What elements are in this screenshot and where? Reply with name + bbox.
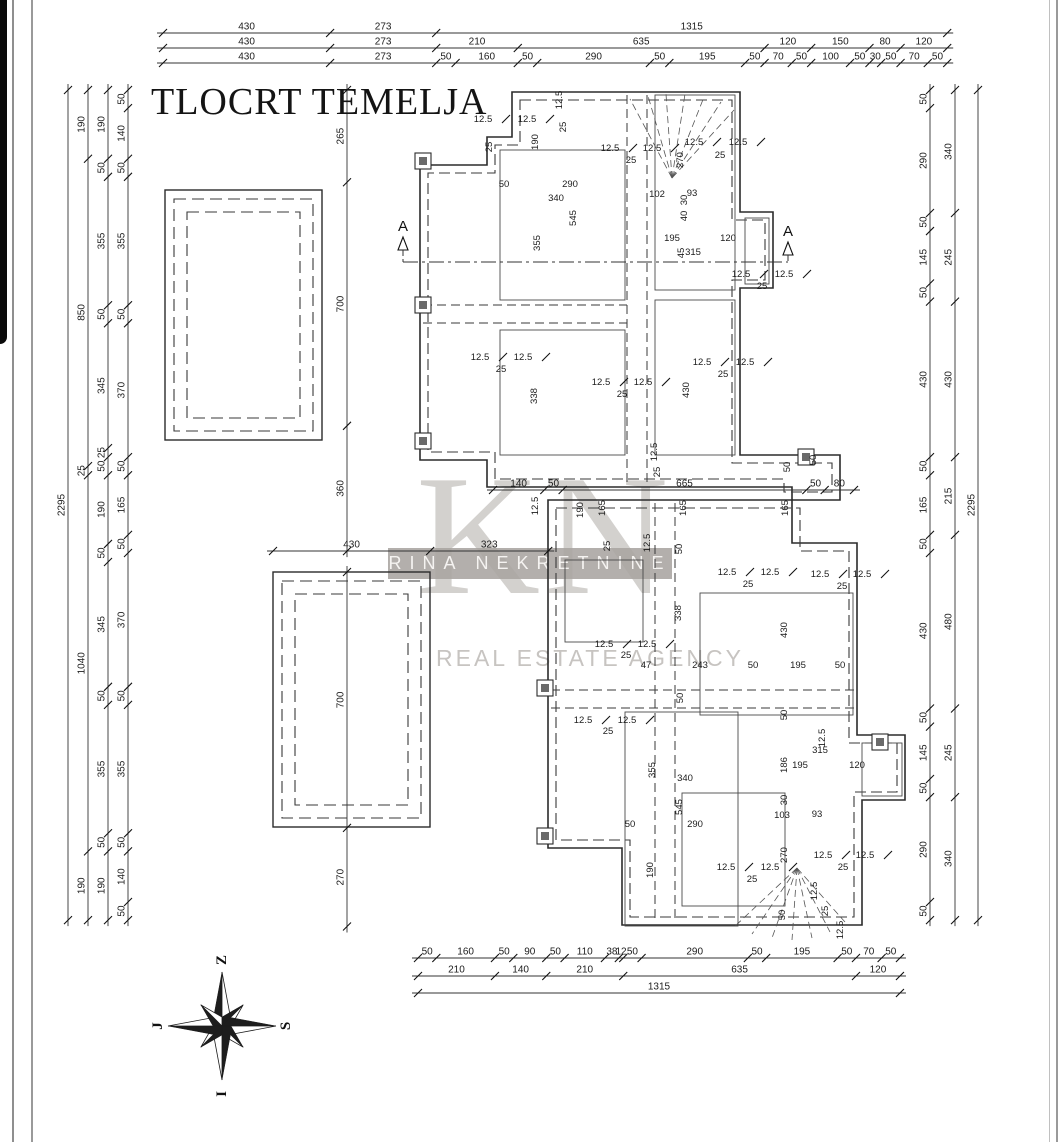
dim-label: 290	[687, 819, 703, 830]
drawing-title: TLOCRT TEMELJA	[151, 80, 487, 124]
dim-label: 50	[627, 947, 639, 958]
dim-label: 50	[625, 819, 636, 830]
dim-label: 50	[440, 52, 452, 63]
dim-label: 360	[336, 480, 347, 497]
scan-edge-bar	[0, 0, 7, 344]
room-outline	[500, 150, 625, 300]
dim-label: 30	[779, 795, 790, 806]
dim-label: 145	[919, 249, 930, 266]
dim-label: 290	[686, 947, 703, 958]
dimension-chain: 210140210635120	[412, 965, 906, 981]
dim-label: 50	[748, 660, 759, 671]
dimension-chain: 2295	[967, 84, 983, 926]
dim-label: 120	[849, 760, 865, 771]
dim-label: 25	[603, 726, 614, 737]
dim-label: 245	[944, 744, 955, 761]
dim-label: 480	[944, 613, 955, 630]
dimension-chain: 190850251040190	[77, 84, 93, 926]
dim-label: 25	[757, 281, 768, 292]
dim-label: 50	[522, 52, 534, 63]
compass-rose: ZSJI	[150, 955, 294, 1097]
dim-label: 190	[575, 502, 586, 518]
dimension-chain: 5029050145504305016550430501455029050	[919, 84, 935, 926]
dim-label: 12.5	[814, 850, 833, 861]
dim-label: 50	[919, 93, 930, 105]
detached-foundation-pad	[165, 190, 322, 440]
dim-label: 345	[97, 616, 108, 633]
dim-label: 50	[808, 455, 819, 466]
dim-label: 103	[774, 810, 790, 821]
dim-label: 338	[673, 605, 684, 621]
dim-label: 50	[117, 93, 128, 105]
dim-label: 290	[562, 179, 578, 190]
dim-label: 430	[238, 22, 255, 33]
dim-label: 102	[649, 189, 665, 200]
dim-label: 290	[585, 52, 602, 63]
dim-label: 50	[97, 460, 108, 472]
dim-label: 160	[478, 52, 495, 63]
dim-label: 80	[879, 37, 891, 48]
compass-direction-letter: J	[150, 1022, 166, 1030]
room-outline	[862, 743, 902, 796]
dimension-chain: 5016050905011038125029050195507050	[412, 947, 906, 963]
dim-label: 50	[674, 544, 685, 555]
dim-label: 545	[568, 210, 579, 226]
dim-label: 265	[336, 127, 347, 144]
dim-label: 430	[779, 622, 790, 638]
dim-label: 25	[484, 142, 495, 153]
dim-label: 50	[779, 710, 790, 721]
dim-label: 50	[97, 836, 108, 848]
dimension-chain: 4302731315	[157, 22, 953, 38]
dim-label: 50	[885, 947, 897, 958]
dim-label: 270	[675, 152, 686, 168]
dim-label: 273	[375, 52, 392, 63]
dim-label: 25	[617, 389, 628, 400]
dim-label: 12.5	[649, 443, 660, 462]
dim-label: 100	[822, 52, 839, 63]
dim-label: 30	[870, 52, 882, 63]
dim-label: 50	[919, 287, 930, 299]
dim-label: 50	[117, 538, 128, 550]
dim-label: 50	[919, 905, 930, 917]
dim-label: 290	[919, 152, 930, 169]
dim-label: 315	[812, 745, 828, 756]
dim-label: 12.5	[729, 137, 748, 148]
dim-label: 195	[664, 233, 680, 244]
section-mark-letter: A	[783, 223, 793, 240]
dim-label: 12.5	[717, 862, 736, 873]
dim-label: 140	[117, 125, 128, 142]
dim-label: 25	[77, 465, 88, 477]
dim-label: 700	[336, 295, 347, 312]
dim-label: 50	[841, 947, 853, 958]
dimension-chain: 2295	[57, 84, 73, 926]
dim-label: 25	[652, 467, 663, 478]
dim-label: 120	[720, 233, 736, 244]
dim-label: 70	[909, 52, 921, 63]
compass-point-dark	[222, 1026, 230, 1080]
dim-label: 195	[794, 947, 811, 958]
section-arrow	[398, 237, 408, 250]
dim-label: 165	[919, 496, 930, 513]
dim-label: 430	[343, 540, 360, 551]
dim-label: 25	[558, 122, 569, 133]
dim-label: 25	[838, 862, 849, 873]
section-mark-letter: A	[398, 218, 408, 235]
dim-label: 665	[676, 479, 693, 490]
dim-label: 140	[117, 868, 128, 885]
dim-label: 12.5	[471, 352, 490, 363]
dim-label: 50	[117, 460, 128, 472]
dim-label: 50	[548, 479, 560, 490]
dim-label: 25	[715, 150, 726, 161]
dim-label: 186	[779, 757, 790, 773]
dim-label: 150	[832, 37, 849, 48]
dim-label: 355	[647, 762, 658, 778]
dim-label: 120	[870, 965, 887, 976]
room-outline	[500, 330, 625, 455]
dim-label: 190	[97, 877, 108, 894]
dim-label: 50	[749, 52, 761, 63]
dim-label: 340	[944, 143, 955, 160]
dim-label: 50	[932, 52, 944, 63]
dim-label: 355	[97, 232, 108, 249]
compass-point-dark	[222, 1018, 276, 1026]
dim-label: 50	[777, 910, 788, 921]
dim-label: 355	[117, 232, 128, 249]
dim-label: 12.5	[618, 715, 637, 726]
dim-label: 30	[679, 195, 690, 206]
dim-label: 12.5	[601, 143, 620, 154]
dim-label: 635	[633, 37, 650, 48]
dim-label: 165	[117, 496, 128, 513]
dim-label: 195	[792, 760, 808, 771]
dim-label: 50	[97, 162, 108, 174]
room-outline	[700, 593, 853, 715]
dim-label: 25	[743, 579, 754, 590]
dim-label: 50	[499, 179, 510, 190]
dim-label: 273	[375, 22, 392, 33]
dim-label: 430	[681, 382, 692, 398]
blueprint-page: KN RINA NEKRETNINE REAL ESTATE AGENCY AA…	[0, 0, 1060, 1142]
dim-label: 190	[645, 862, 656, 878]
dim-label: 12.5	[809, 882, 820, 901]
detached-foundation-pad	[273, 572, 430, 827]
stair-fan-line	[666, 94, 672, 178]
dim-label: 12.5	[634, 377, 653, 388]
dim-label: 290	[919, 841, 930, 858]
dim-label: 50	[751, 947, 763, 958]
room-outline	[565, 560, 643, 642]
dim-label: 50	[422, 947, 434, 958]
stair-fan-line	[630, 99, 672, 178]
dim-label: 355	[97, 760, 108, 777]
dim-label: 50	[117, 836, 128, 848]
room-outline	[682, 793, 785, 906]
dim-label: 50	[919, 782, 930, 794]
dim-label: 50	[782, 462, 793, 473]
dim-label: 50	[835, 660, 846, 671]
section-arrow	[783, 242, 793, 255]
dim-label: 12.5	[530, 497, 541, 516]
dim-label: 90	[524, 947, 536, 958]
dim-label: 355	[532, 235, 543, 251]
dim-label: 210	[469, 37, 486, 48]
dim-label: 430	[919, 371, 930, 388]
dimension-chain: 4302735016050290501955070501005030507050	[157, 52, 953, 68]
dim-label: 12.5	[518, 114, 537, 125]
dim-label: 195	[699, 52, 716, 63]
dim-label: 340	[548, 193, 564, 204]
dim-label: 215	[944, 487, 955, 504]
dim-label: 50	[810, 479, 822, 490]
dim-label: 40	[679, 211, 690, 222]
dim-label: 50	[919, 538, 930, 550]
dim-label: 12.5	[643, 143, 662, 154]
dim-label: 270	[779, 847, 790, 863]
stair-fan-line	[797, 868, 812, 938]
dim-label: 25	[602, 541, 613, 552]
dim-label: 430	[919, 622, 930, 639]
compass-direction-letter: Z	[214, 955, 230, 965]
dim-label: 47	[641, 660, 652, 671]
dimension-chain: 1315	[412, 982, 906, 998]
dim-label: 50	[97, 308, 108, 320]
dim-label: 12.5	[514, 352, 533, 363]
dim-label: 12.5	[642, 534, 653, 553]
dim-label: 635	[731, 965, 748, 976]
dim-label: 850	[77, 304, 88, 321]
dim-label: 340	[944, 850, 955, 867]
dim-label: 545	[674, 799, 685, 815]
dim-label: 12.5	[732, 269, 751, 280]
dim-label: 140	[512, 965, 529, 976]
compass-point-dark	[168, 1026, 222, 1034]
dim-label: 50	[97, 547, 108, 559]
dim-label: 50	[919, 712, 930, 724]
dim-label: 50	[796, 52, 808, 63]
dimension-chain: 340245430215480245340	[944, 84, 960, 926]
foundation-outer-wall	[420, 92, 840, 500]
dim-label: 93	[812, 809, 823, 820]
dim-label: 145	[919, 744, 930, 761]
dim-label: 430	[238, 37, 255, 48]
dim-label: 700	[336, 691, 347, 708]
dim-label: 1040	[77, 652, 88, 675]
dim-label: 50	[654, 52, 666, 63]
dim-label: 243	[692, 660, 708, 671]
dim-label: 25	[97, 447, 108, 459]
dim-label: 25	[820, 906, 831, 917]
dim-label: 270	[336, 868, 347, 885]
dim-label: 50	[919, 460, 930, 472]
dim-label: 12.5	[693, 357, 712, 368]
dim-label: 315	[685, 247, 701, 258]
foundation-plan-drawing: AA43027313154302732106351201508012043027…	[0, 0, 1060, 1142]
dimension-chain: 43027321063512015080120	[157, 37, 953, 53]
dim-label: 12.5	[761, 862, 780, 873]
dimension-chain: 265700360	[336, 84, 352, 557]
dim-label: 50	[854, 52, 866, 63]
dim-label: 165	[678, 500, 689, 516]
dim-label: 12.5	[574, 715, 593, 726]
dim-label: 273	[375, 37, 392, 48]
dimension-chain: 430323	[267, 540, 554, 556]
dim-label: 120	[780, 37, 797, 48]
dim-label: 160	[457, 947, 474, 958]
dim-label: 12.5	[811, 569, 830, 580]
dim-label: 12.5	[718, 567, 737, 578]
dim-label: 12.5	[595, 639, 614, 650]
plan-annotations: 12.52512.512.5251905029034054535512.512.…	[471, 91, 892, 940]
dim-label: 140	[510, 479, 527, 490]
dim-label: 340	[677, 773, 693, 784]
stair-fan-line	[752, 868, 797, 934]
dim-label: 12.5	[835, 921, 846, 940]
dim-label: 190	[530, 134, 541, 150]
dim-label: 430	[944, 371, 955, 388]
dim-label: 338	[529, 388, 540, 404]
dimension-chain: 19050355503452550190503455035550190	[97, 84, 113, 926]
dim-label: 355	[117, 760, 128, 777]
dim-label: 195	[790, 660, 806, 671]
dim-label: 345	[97, 377, 108, 394]
dim-label: 12.5	[638, 639, 657, 650]
dim-label: 323	[481, 540, 498, 551]
page-border-line	[12, 0, 14, 1142]
dim-label: 12.5	[592, 377, 611, 388]
dim-label: 50	[117, 690, 128, 702]
page-border-line	[31, 0, 33, 1142]
dim-label: 165	[780, 500, 791, 516]
dim-label: 2295	[967, 493, 978, 516]
page-border-line	[1056, 0, 1058, 1142]
compass-direction-letter: S	[278, 1022, 294, 1030]
dim-label: 190	[97, 501, 108, 518]
dimension-chain: 5014050355503705016550370503555014050	[117, 84, 133, 926]
dim-label: 45	[676, 248, 687, 259]
dim-label: 245	[944, 249, 955, 266]
page-border-line	[1049, 0, 1050, 1142]
dim-label: 370	[117, 381, 128, 398]
compass-direction-letter: I	[214, 1091, 230, 1097]
dim-label: 50	[117, 308, 128, 320]
dim-label: 50	[117, 905, 128, 917]
dim-label: 50	[499, 947, 511, 958]
dim-label: 25	[621, 650, 632, 661]
room-outline	[625, 712, 738, 926]
dim-label: 210	[576, 965, 593, 976]
dim-label: 12.5	[685, 137, 704, 148]
dim-label: 430	[238, 52, 255, 63]
dim-label: 12.5	[736, 357, 755, 368]
dim-label: 70	[863, 947, 875, 958]
dim-label: 50	[885, 52, 897, 63]
dim-label: 80	[834, 479, 846, 490]
stair-fan-line	[648, 96, 672, 178]
dim-label: 370	[117, 611, 128, 628]
dim-label: 165	[597, 500, 608, 516]
dim-label: 190	[77, 116, 88, 133]
dim-label: 25	[837, 581, 848, 592]
dim-label: 2295	[57, 493, 68, 516]
dim-label: 50	[550, 947, 562, 958]
dim-label: 120	[916, 37, 933, 48]
dim-label: 25	[626, 155, 637, 166]
dim-label: 210	[448, 965, 465, 976]
dim-label: 50	[675, 693, 686, 704]
dim-label: 25	[747, 874, 758, 885]
dim-label: 12.5	[554, 91, 565, 110]
dim-label: 50	[919, 216, 930, 228]
dimension-chains: 4302731315430273210635120150801204302735…	[57, 22, 983, 998]
dim-label: 50	[117, 162, 128, 174]
dim-label: 190	[77, 877, 88, 894]
dimension-chain: 700270	[336, 566, 352, 933]
dim-label: 12.5	[761, 567, 780, 578]
dim-label: 12.5	[853, 569, 872, 580]
dim-label: 190	[97, 116, 108, 133]
dim-label: 1315	[648, 982, 671, 993]
dim-label: 25	[496, 364, 507, 375]
dim-label: 12.5	[775, 269, 794, 280]
dim-label: 70	[773, 52, 785, 63]
dim-label: 110	[577, 947, 593, 958]
dim-label: 1315	[681, 22, 704, 33]
dim-label: 25	[718, 369, 729, 380]
dim-label: 12.5	[856, 850, 875, 861]
dim-label: 50	[97, 690, 108, 702]
